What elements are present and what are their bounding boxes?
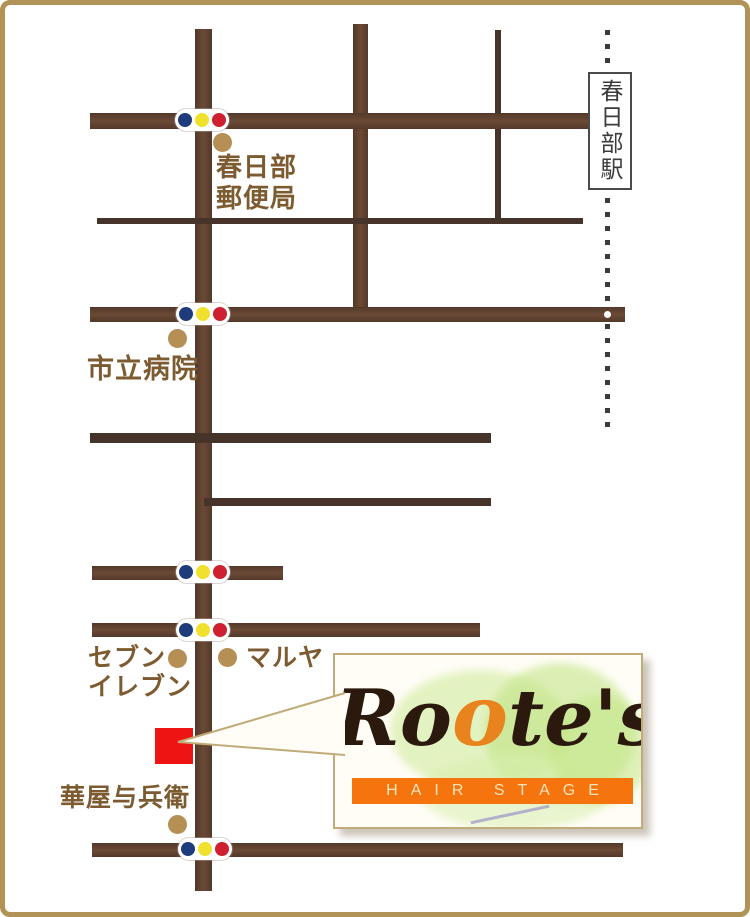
traffic-yellow-dot [196, 565, 210, 579]
poi-dot-hospital [168, 329, 187, 348]
traffic-yellow-dot [198, 842, 212, 856]
station-sign-label: 春日部駅 [593, 79, 627, 183]
brand-orange-o: o [452, 666, 508, 765]
traffic-blue-dot [179, 565, 193, 579]
traffic-red-dot [213, 307, 227, 321]
label-hospital: 市立病院 [87, 355, 199, 384]
traffic-yellow-dot [196, 307, 210, 321]
railway-crossing-dot [604, 311, 611, 318]
traffic-yellow-dot [195, 113, 209, 127]
poi-dot-hanaya [168, 815, 187, 834]
traffic-light-icon [176, 619, 230, 641]
traffic-blue-dot [179, 307, 193, 321]
traffic-blue-dot [178, 113, 192, 127]
traffic-red-dot [213, 623, 227, 637]
access-map: 春日部駅 春日部 郵便局 市立病院 セブン イレブン マルヤ 華屋与兵衛 Roo… [0, 0, 750, 917]
traffic-light-icon [176, 561, 230, 583]
station-sign: 春日部駅 [588, 72, 632, 190]
poi-dot-maruya [218, 648, 237, 667]
brand-text: Ro [335, 673, 452, 764]
road-vertical-2 [353, 24, 368, 318]
brand-text: te's [508, 673, 643, 764]
label-post-office: 春日部 郵便局 [216, 152, 297, 214]
road-horizontal-2 [90, 307, 625, 322]
road-horizontal-4 [204, 498, 491, 506]
callout-pointer [165, 685, 350, 765]
poi-dot-post-office [213, 133, 232, 152]
traffic-red-dot [212, 113, 226, 127]
salon-callout: Roote's HAIR STAGE [333, 653, 643, 829]
road-horizontal-7 [92, 843, 623, 857]
road-horizontal-thin-1 [97, 218, 583, 224]
traffic-red-dot [213, 565, 227, 579]
traffic-light-icon [178, 838, 232, 860]
traffic-blue-dot [181, 842, 195, 856]
label-maruya: マルヤ [246, 644, 324, 673]
road-horizontal-1 [90, 113, 588, 129]
traffic-red-dot [215, 842, 229, 856]
label-hanaya: 華屋与兵衛 [60, 784, 190, 813]
traffic-yellow-dot [196, 623, 210, 637]
traffic-light-icon [175, 109, 229, 131]
road-horizontal-3 [90, 433, 491, 443]
road-horizontal-6 [92, 623, 480, 637]
salon-logo: Roote's [335, 661, 641, 774]
salon-subtitle-band: HAIR STAGE [352, 778, 633, 804]
traffic-blue-dot [179, 623, 193, 637]
traffic-light-icon [176, 303, 230, 325]
